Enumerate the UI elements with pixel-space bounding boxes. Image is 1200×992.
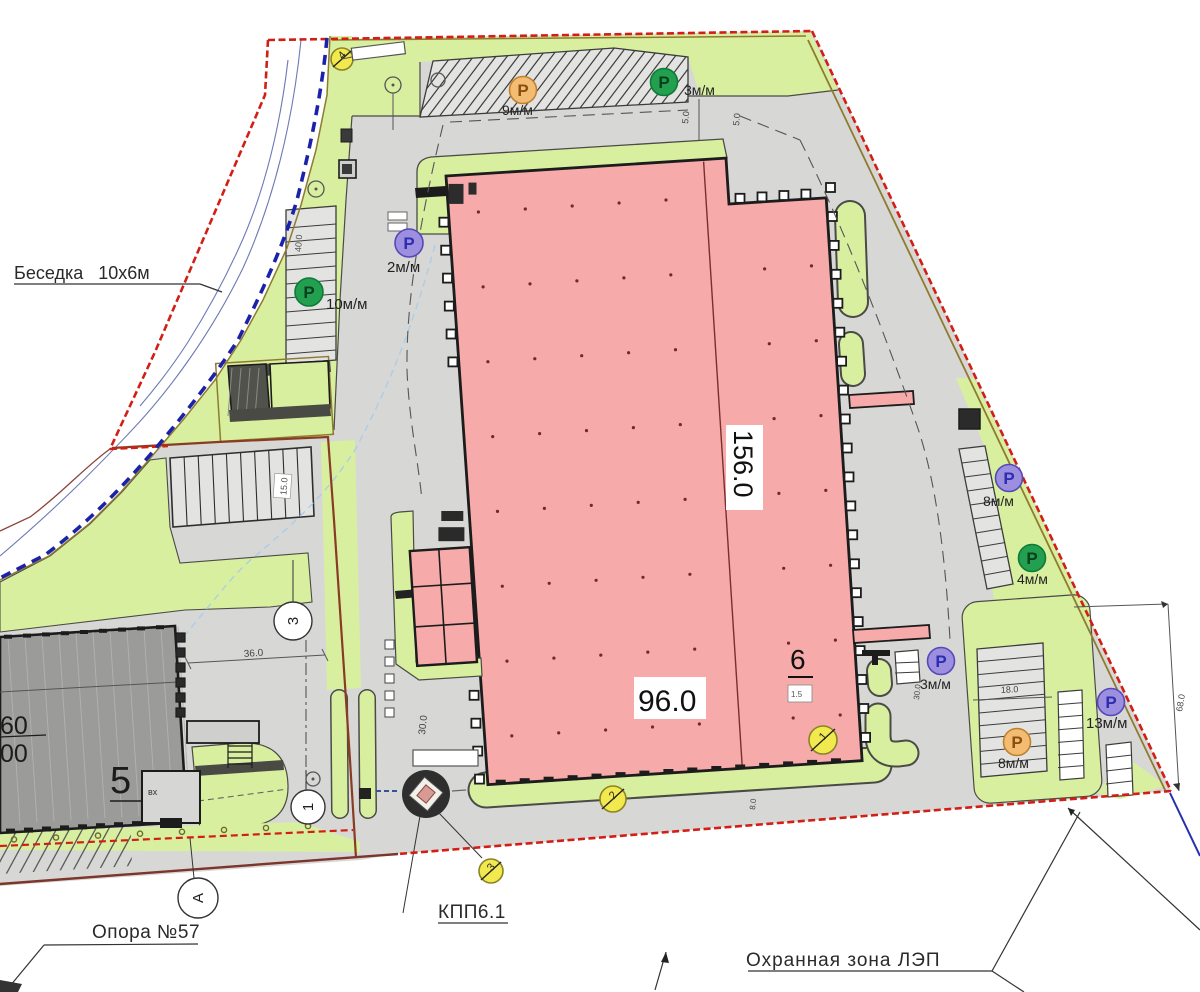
svg-text:6: 6 (790, 644, 806, 675)
svg-text:9м/м: 9м/м (502, 102, 533, 118)
svg-text:Беседка 10х6м: Беседка 10х6м (14, 263, 150, 283)
svg-text:P: P (935, 652, 946, 671)
svg-text:Охранная зона ЛЭП: Охранная зона ЛЭП (746, 950, 941, 971)
svg-text:P: P (1003, 469, 1014, 488)
svg-text:5.0: 5.0 (731, 113, 742, 126)
svg-text:4м/м: 4м/м (1017, 571, 1048, 587)
svg-text:96.0: 96.0 (638, 685, 696, 718)
svg-text:36.0: 36.0 (243, 648, 264, 660)
svg-text:P: P (1026, 549, 1037, 568)
svg-text:2м/м: 2м/м (387, 259, 420, 276)
svg-text:00: 00 (0, 740, 28, 768)
svg-text:КПП6.1: КПП6.1 (438, 902, 506, 923)
svg-text:5: 5 (110, 760, 131, 802)
svg-text:10м/м: 10м/м (326, 296, 367, 313)
svg-text:3: 3 (285, 617, 302, 625)
svg-text:1.5: 1.5 (791, 690, 803, 699)
svg-text:13м/м: 13м/м (1086, 715, 1127, 732)
svg-text:15.0: 15.0 (278, 477, 289, 495)
svg-text:8.0: 8.0 (748, 798, 758, 811)
svg-text:вх: вх (148, 787, 158, 797)
svg-text:8м/м: 8м/м (983, 493, 1014, 509)
svg-text:P: P (517, 81, 528, 100)
svg-text:30.0: 30.0 (417, 714, 430, 735)
svg-text:3м/м: 3м/м (920, 676, 951, 692)
svg-text:3м/м: 3м/м (684, 82, 715, 98)
svg-text:8м/м: 8м/м (998, 755, 1029, 771)
svg-text:40.0: 40.0 (293, 234, 304, 252)
svg-text:1: 1 (300, 803, 317, 811)
svg-text:А: А (190, 893, 207, 903)
svg-text:P: P (658, 73, 669, 92)
svg-text:156.0: 156.0 (728, 430, 758, 498)
svg-text:5.0: 5.0 (680, 111, 691, 124)
svg-text:P: P (1011, 733, 1022, 752)
svg-text:18.0: 18.0 (1001, 684, 1019, 695)
svg-text:P: P (303, 283, 314, 302)
svg-text:Опора №57: Опора №57 (92, 922, 200, 943)
svg-text:P: P (1105, 693, 1116, 712)
svg-text:P: P (403, 234, 414, 253)
